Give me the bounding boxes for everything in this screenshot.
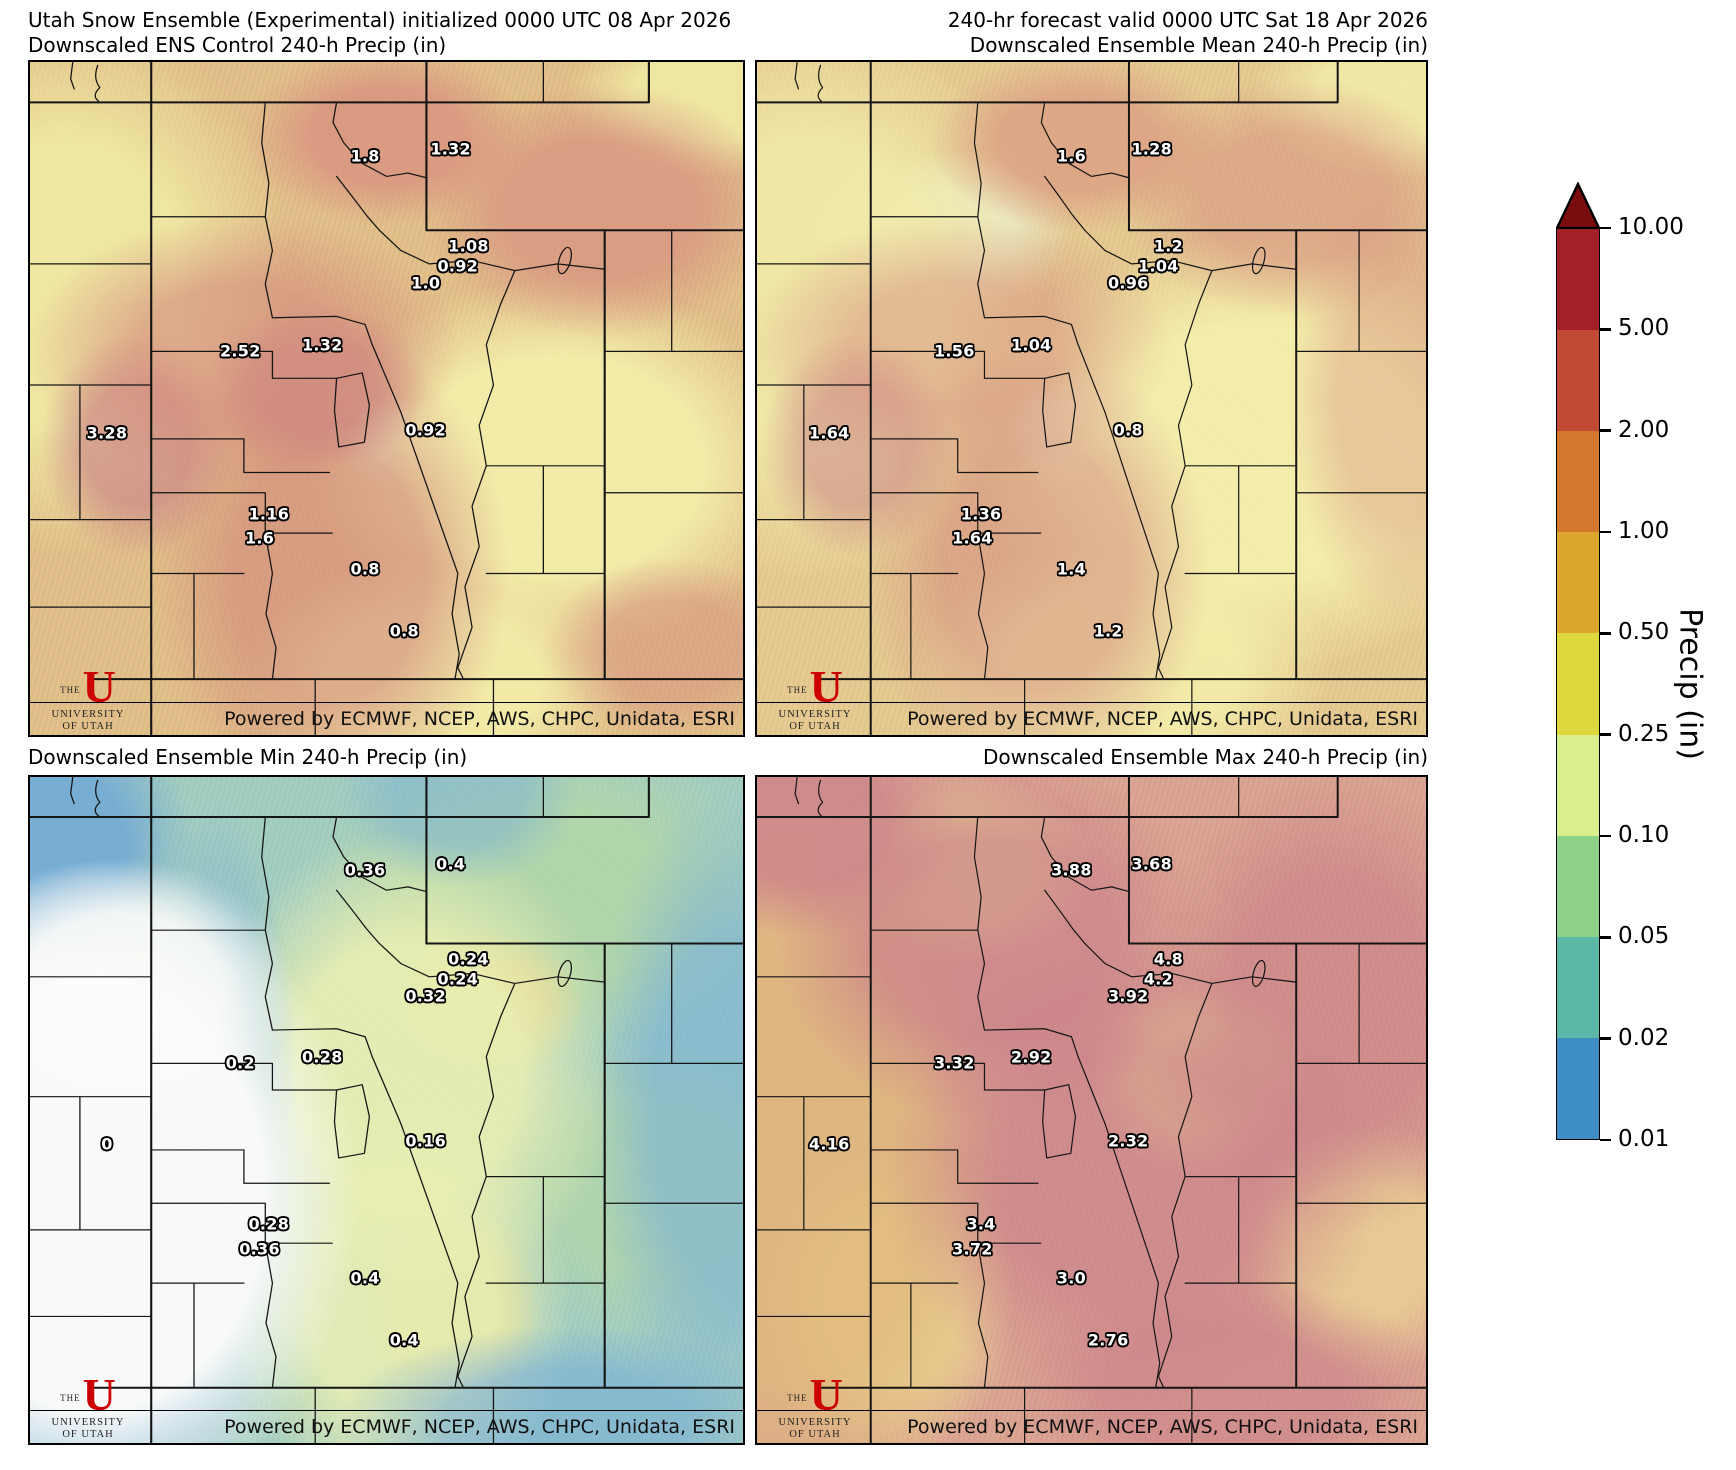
logo-university-text: UNIVERSITY xyxy=(42,710,134,721)
map-value-layer: 1.61.281.21.040.961.561.041.640.81.361.6… xyxy=(757,62,1426,735)
tick-label: 0.50 xyxy=(1618,619,1669,645)
logo-the-text: THE xyxy=(787,686,808,695)
colorbar-segment xyxy=(1557,330,1599,431)
tick-label: 10.00 xyxy=(1618,214,1684,240)
precip-value-label: 1.8 xyxy=(350,147,379,166)
logo-of-utah-text: OF UTAH xyxy=(769,1430,861,1441)
title-mean-line: Downscaled Ensemble Mean 240-h Precip (i… xyxy=(948,33,1428,58)
colorbar-axis-label: Precip (in) xyxy=(1673,608,1708,760)
precip-value-label: 0.36 xyxy=(239,1239,280,1258)
precip-value-label: 0.32 xyxy=(405,987,446,1006)
precip-value-label: 0.8 xyxy=(1114,421,1143,440)
tick-label: 0.10 xyxy=(1618,822,1669,848)
title-top-left: Utah Snow Ensemble (Experimental) initia… xyxy=(28,8,731,58)
precip-value-label: 0.4 xyxy=(350,1269,379,1288)
precip-value-label: 3.88 xyxy=(1051,861,1092,880)
colorbar-segments xyxy=(1556,228,1600,1140)
logo-of-utah-text: OF UTAH xyxy=(42,1430,134,1441)
logo-the-text: THE xyxy=(60,1394,81,1403)
precip-value-label: 4.8 xyxy=(1154,949,1183,968)
title-init-line: Utah Snow Ensemble (Experimental) initia… xyxy=(28,8,731,33)
precip-value-label: 1.04 xyxy=(1138,256,1179,275)
map-value-layer: 0.360.40.240.240.320.20.2800.160.280.360… xyxy=(30,777,743,1443)
colorbar-segment xyxy=(1557,431,1599,532)
logo-university-text: UNIVERSITY xyxy=(769,710,861,721)
precip-value-label: 0.28 xyxy=(249,1214,290,1233)
precip-value-label: 3.72 xyxy=(952,1239,993,1258)
university-of-utah-logo: THEU UNIVERSITY OF UTAH xyxy=(42,664,134,732)
precip-value-label: 3.68 xyxy=(1131,854,1172,873)
precip-value-label: 4.16 xyxy=(809,1134,850,1153)
precip-value-label: 1.4 xyxy=(1057,559,1086,578)
precip-value-label: 1.32 xyxy=(302,335,343,354)
logo-university-text: UNIVERSITY xyxy=(769,1418,861,1429)
precip-value-label: 1.56 xyxy=(934,342,975,361)
tick-label: 5.00 xyxy=(1618,315,1669,341)
title-top-right: 240-hr forecast valid 0000 UTC Sat 18 Ap… xyxy=(948,8,1428,58)
precip-value-label: 4.2 xyxy=(1144,969,1173,988)
title-min-line: Downscaled Ensemble Min 240-h Precip (in… xyxy=(28,745,467,770)
university-of-utah-logo: THEU UNIVERSITY OF UTAH xyxy=(769,1372,861,1440)
tick-mark xyxy=(1600,733,1611,735)
precip-value-label: 0 xyxy=(101,1134,112,1153)
colorbar-arrow-shape xyxy=(1557,184,1599,228)
tick-mark xyxy=(1600,1139,1611,1141)
colorbar: 10.005.002.001.000.500.250.100.050.020.0… xyxy=(1556,182,1736,1192)
block-u-icon: U xyxy=(810,1372,843,1418)
map-panel-ens-min: 0.360.40.240.240.320.20.2800.160.280.360… xyxy=(28,775,745,1445)
precip-value-label: 0.2 xyxy=(226,1054,255,1073)
precip-value-label: 0.96 xyxy=(1108,274,1149,293)
precip-value-label: 1.6 xyxy=(245,529,274,548)
data-credit-footer: Powered by ECMWF, NCEP, AWS, CHPC, Unida… xyxy=(30,1410,743,1443)
map-panel-ens-control: 1.81.321.080.921.02.521.323.280.921.161.… xyxy=(28,60,745,737)
colorbar-segment xyxy=(1557,229,1599,330)
precip-value-label: 1.64 xyxy=(809,423,850,442)
tick-mark xyxy=(1600,1037,1611,1039)
title-bottom-left: Downscaled Ensemble Min 240-h Precip (in… xyxy=(28,745,467,770)
logo-the-text: THE xyxy=(60,686,81,695)
tick-mark xyxy=(1600,429,1611,431)
block-u-icon: U xyxy=(83,664,116,710)
precip-value-label: 0.36 xyxy=(345,861,386,880)
precip-value-label: 0.8 xyxy=(390,622,419,641)
tick-label: 0.05 xyxy=(1618,923,1669,949)
precip-value-label: 3.0 xyxy=(1057,1269,1086,1288)
precip-value-label: 0.92 xyxy=(437,256,478,275)
precip-value-label: 1.16 xyxy=(249,504,290,523)
precip-value-label: 3.4 xyxy=(966,1214,995,1233)
precip-value-label: 0.24 xyxy=(448,949,489,968)
tick-label: 0.25 xyxy=(1618,721,1669,747)
precip-value-label: 2.76 xyxy=(1088,1331,1129,1350)
tick-mark xyxy=(1600,328,1611,330)
colorbar-segment xyxy=(1557,1038,1599,1139)
logo-of-utah-text: OF UTAH xyxy=(769,722,861,733)
precip-value-label: 1.64 xyxy=(952,529,993,548)
colorbar-segment xyxy=(1557,836,1599,937)
precip-value-label: 3.28 xyxy=(87,423,128,442)
logo-of-utah-text: OF UTAH xyxy=(42,722,134,733)
colorbar-segment xyxy=(1557,937,1599,1038)
data-credit-footer: Powered by ECMWF, NCEP, AWS, CHPC, Unida… xyxy=(30,702,743,735)
logo-the-text: THE xyxy=(787,1394,808,1403)
tick-label: 2.00 xyxy=(1618,417,1669,443)
precip-value-label: 2.92 xyxy=(1011,1047,1052,1066)
figure-canvas: Utah Snow Ensemble (Experimental) initia… xyxy=(0,0,1736,1470)
precip-value-label: 3.32 xyxy=(934,1054,975,1073)
title-valid-line: 240-hr forecast valid 0000 UTC Sat 18 Ap… xyxy=(948,8,1428,33)
university-of-utah-logo: THEU UNIVERSITY OF UTAH xyxy=(769,664,861,732)
tick-mark xyxy=(1600,632,1611,634)
colorbar-over-arrow xyxy=(1556,182,1600,229)
block-u-icon: U xyxy=(810,664,843,710)
precip-value-label: 1.04 xyxy=(1011,335,1052,354)
tick-label: 0.02 xyxy=(1618,1025,1669,1051)
precip-value-label: 0.16 xyxy=(405,1132,446,1151)
precip-value-label: 1.28 xyxy=(1131,140,1172,159)
tick-mark xyxy=(1600,936,1611,938)
tick-mark xyxy=(1600,531,1611,533)
precip-value-label: 2.52 xyxy=(220,342,261,361)
tick-label: 0.01 xyxy=(1618,1126,1669,1152)
colorbar-segment xyxy=(1557,532,1599,633)
precip-value-label: 0.4 xyxy=(390,1331,419,1350)
map-value-layer: 3.883.684.84.23.923.322.924.162.323.43.7… xyxy=(757,777,1426,1443)
precip-value-label: 1.32 xyxy=(430,140,471,159)
precip-value-label: 1.36 xyxy=(961,504,1002,523)
title-control-line: Downscaled ENS Control 240-h Precip (in) xyxy=(28,33,731,58)
title-bottom-right: Downscaled Ensemble Max 240-h Precip (in… xyxy=(983,745,1428,770)
precip-value-label: 2.32 xyxy=(1108,1132,1149,1151)
precip-value-label: 1.08 xyxy=(448,236,489,255)
title-max-line: Downscaled Ensemble Max 240-h Precip (in… xyxy=(983,745,1428,770)
colorbar-segment xyxy=(1557,735,1599,836)
precip-value-label: 0.24 xyxy=(437,969,478,988)
tick-label: 1.00 xyxy=(1618,518,1669,544)
map-panel-ens-mean: 1.61.281.21.040.961.561.041.640.81.361.6… xyxy=(755,60,1428,737)
university-of-utah-logo: THEU UNIVERSITY OF UTAH xyxy=(42,1372,134,1440)
precip-value-label: 1.0 xyxy=(411,274,440,293)
colorbar-segment xyxy=(1557,633,1599,734)
tick-mark xyxy=(1600,227,1611,229)
precip-value-label: 1.2 xyxy=(1094,622,1123,641)
precip-value-label: 1.6 xyxy=(1057,147,1086,166)
precip-value-label: 0.4 xyxy=(436,854,465,873)
block-u-icon: U xyxy=(83,1372,116,1418)
precip-value-label: 0.8 xyxy=(350,559,379,578)
precip-value-label: 0.28 xyxy=(302,1047,343,1066)
tick-mark xyxy=(1600,835,1611,837)
map-panel-ens-max: 3.883.684.84.23.923.322.924.162.323.43.7… xyxy=(755,775,1428,1445)
logo-university-text: UNIVERSITY xyxy=(42,1418,134,1429)
precip-value-label: 1.2 xyxy=(1154,236,1183,255)
precip-value-label: 0.92 xyxy=(405,421,446,440)
map-value-layer: 1.81.321.080.921.02.521.323.280.921.161.… xyxy=(30,62,743,735)
precip-value-label: 3.92 xyxy=(1108,987,1149,1006)
